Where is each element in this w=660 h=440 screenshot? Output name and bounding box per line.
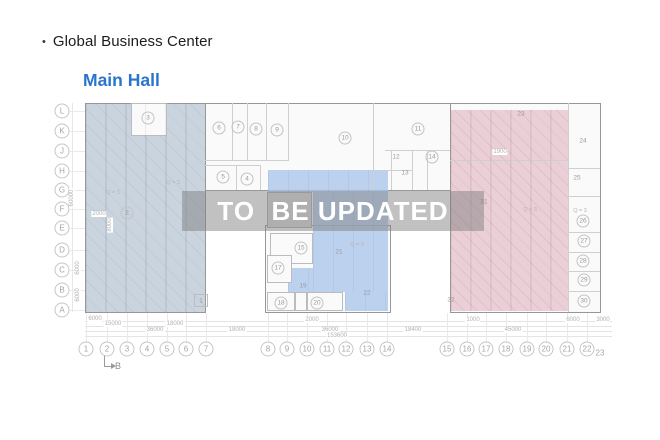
wall-line <box>266 103 267 160</box>
room-number: 17 <box>272 262 285 275</box>
room-number: 24 <box>579 138 586 145</box>
room-number: 15 <box>295 242 308 255</box>
grid-row-label: K <box>55 124 70 139</box>
row-tick <box>70 151 85 152</box>
dimension-label: 15000 <box>104 321 123 327</box>
room-number: 28 <box>577 255 590 268</box>
grid-col-label: 4 <box>140 342 155 357</box>
grid-row-label: A <box>55 303 70 318</box>
grid-col-label: 5 <box>160 342 175 357</box>
col-tick <box>546 313 547 343</box>
room-number: 19 <box>299 283 306 290</box>
row-tick <box>70 228 85 229</box>
room-number: 8 <box>250 123 263 136</box>
grid-col-label: 10 <box>300 342 315 357</box>
grid-col-label: 15 <box>440 342 455 357</box>
room-number: 32 <box>447 297 454 304</box>
col-tick <box>107 313 108 343</box>
room-number: 20 <box>311 297 324 310</box>
wall-line-faint <box>490 110 491 311</box>
room-number: 11 <box>412 123 425 136</box>
wall-line-faint <box>510 110 511 311</box>
grid-row-label: J <box>55 144 70 159</box>
dimension-label: 6000 <box>75 287 81 302</box>
col-tick <box>287 313 288 343</box>
grid-row-label: G <box>55 183 70 198</box>
zone-label: Q = 3 <box>523 207 537 213</box>
wall-line <box>236 165 237 190</box>
wall-line <box>568 271 600 272</box>
room-number: 14 <box>426 151 439 164</box>
room-number: 2 <box>121 207 134 220</box>
col-tick <box>527 313 528 343</box>
col-tick <box>367 313 368 343</box>
grid-col-label: 13 <box>360 342 375 357</box>
wall-line <box>385 150 450 151</box>
room-number: 22 <box>363 290 370 297</box>
dimension-label: 1000 <box>465 317 480 323</box>
wall-line <box>568 232 600 233</box>
col-tick <box>206 313 207 343</box>
grid-col-label: 12 <box>339 342 354 357</box>
grid-col-label: 11 <box>320 342 335 357</box>
room-number: 9 <box>271 124 284 137</box>
dimension-label: 2000 <box>304 317 319 323</box>
watermark-text: TO BE UPDATED <box>217 196 448 227</box>
grid-col-label: 6 <box>179 342 194 357</box>
page: • Global Business Center Main Hall <box>0 0 660 440</box>
room-number: 4 <box>241 173 254 186</box>
dimension-label: 6000 <box>565 317 580 323</box>
grid-col-label: 22 <box>580 342 595 357</box>
dimension-label: 18000 <box>166 321 185 327</box>
wall-line <box>568 252 600 253</box>
zone-label: Q = 3 <box>573 208 587 214</box>
grid-row-label: B <box>55 283 70 298</box>
col-tick <box>186 313 187 343</box>
grid-row-label: D <box>55 243 70 258</box>
grid-col-label: 17 <box>479 342 494 357</box>
grid-row-label: C <box>55 263 70 278</box>
dimension-label: 45000 <box>504 327 523 333</box>
wall-line-faint <box>145 103 146 312</box>
grid-col-label: 19 <box>520 342 535 357</box>
wall-line <box>568 103 569 312</box>
room-number: 27 <box>578 235 591 248</box>
dimension-label: 18000 <box>228 327 247 333</box>
room-number: 30 <box>578 295 591 308</box>
row-tick <box>70 171 85 172</box>
grid-col-label: 2 <box>100 342 115 357</box>
room-number: 29 <box>578 274 591 287</box>
col-tick <box>447 313 448 343</box>
grid-col-label: 9 <box>280 342 295 357</box>
wall-line <box>568 291 600 292</box>
wall-line <box>412 150 413 190</box>
wall-line <box>568 196 600 197</box>
row-tick <box>70 250 85 251</box>
dimension-label: 153600 <box>326 333 348 339</box>
dimension-label: 1900 <box>492 149 507 155</box>
col-tick <box>486 313 487 343</box>
wall-line <box>205 165 260 166</box>
wall-line <box>288 103 289 160</box>
room-number: 18 <box>275 297 288 310</box>
col-tick <box>127 313 128 343</box>
grid-row-label: E <box>55 221 70 236</box>
wall-line-faint <box>550 110 551 311</box>
wall-line <box>260 165 261 190</box>
grid-row-label: H <box>55 164 70 179</box>
wall-line <box>247 103 248 160</box>
dimension-label: 6000 <box>87 316 102 322</box>
dimension-label: 60000 <box>69 189 75 208</box>
row-tick <box>70 209 85 210</box>
room-number: 6 <box>213 122 226 135</box>
dimension-label: 3000 <box>595 317 610 323</box>
room-number: 10 <box>339 132 352 145</box>
room-number: 7 <box>232 121 245 134</box>
wall-line-faint <box>165 103 166 312</box>
grid-col-label: 21 <box>560 342 575 357</box>
grid-col-label: 7 <box>199 342 214 357</box>
grid-col-label: 18 <box>499 342 514 357</box>
col-tick <box>387 313 388 343</box>
room-number: 25 <box>573 175 580 182</box>
room-number: 5 <box>217 171 230 184</box>
room-number: 12 <box>392 154 399 161</box>
room-number: 21 <box>335 249 342 256</box>
row-tick <box>70 131 85 132</box>
grid-col-label: 20 <box>539 342 554 357</box>
dimension-label: 18400 <box>404 327 423 333</box>
row-tick <box>70 111 85 112</box>
watermark-band: TO BE UPDATED <box>182 191 484 231</box>
dimension-label: 6000 <box>75 260 81 275</box>
dimension-label: 36000 <box>146 327 165 333</box>
grid-row-label: L <box>55 104 70 119</box>
col-tick <box>587 313 588 343</box>
dimension-label: 2000 <box>91 211 106 217</box>
grid-col-label: 14 <box>380 342 395 357</box>
grid-col-label: 3 <box>120 342 135 357</box>
room-number: 23 <box>517 111 524 118</box>
grid-col-label: 23 <box>596 349 605 358</box>
grid-col-label: 8 <box>261 342 276 357</box>
row-tick <box>70 310 85 311</box>
col-tick <box>268 313 269 343</box>
room-number: 3 <box>142 112 155 125</box>
room-number: 13 <box>401 170 408 177</box>
zone-label: Q = 3 <box>166 180 180 186</box>
grid-col-label: 16 <box>460 342 475 357</box>
room-number: 1 <box>199 298 203 305</box>
wall-line <box>568 168 600 169</box>
col-tick <box>167 313 168 343</box>
dimension-label: 8000 <box>107 217 113 232</box>
wall-line-faint <box>105 103 106 312</box>
room-number: 26 <box>577 215 590 228</box>
wall-line <box>373 103 374 190</box>
grid-row-label: F <box>55 202 70 217</box>
grid-col-label: 1 <box>79 342 94 357</box>
wall-line <box>205 160 289 161</box>
zone-label: Q = 3 <box>350 242 364 248</box>
zone-label: Q = 3 <box>106 190 120 196</box>
